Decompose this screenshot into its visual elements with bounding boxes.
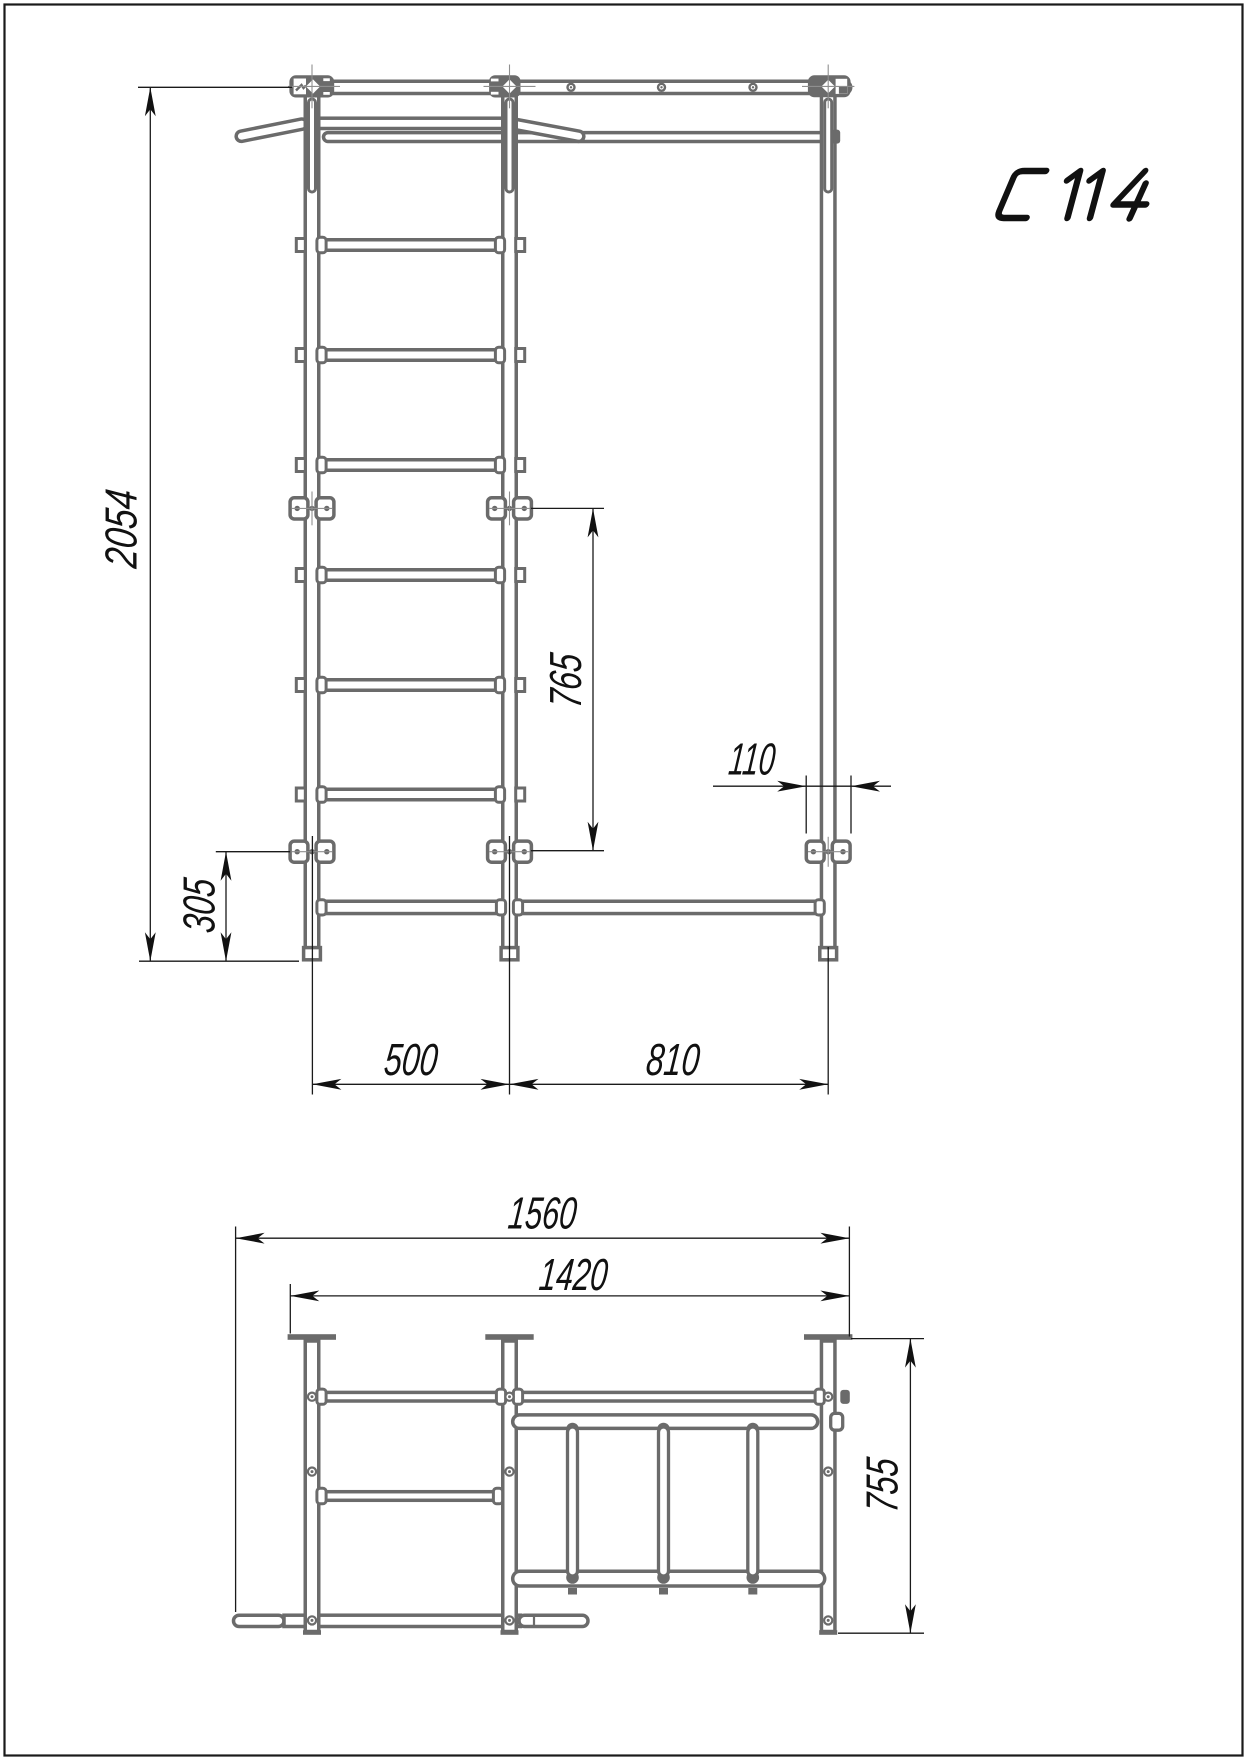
svg-text:500: 500: [382, 1034, 440, 1085]
svg-text:305: 305: [174, 875, 225, 935]
svg-text:110: 110: [726, 734, 777, 785]
svg-text:755: 755: [857, 1455, 908, 1515]
svg-text:2054: 2054: [96, 487, 147, 571]
svg-text:1420: 1420: [537, 1249, 610, 1300]
svg-text:810: 810: [644, 1034, 702, 1085]
svg-text:1560: 1560: [506, 1188, 579, 1239]
svg-text:765: 765: [540, 650, 591, 710]
